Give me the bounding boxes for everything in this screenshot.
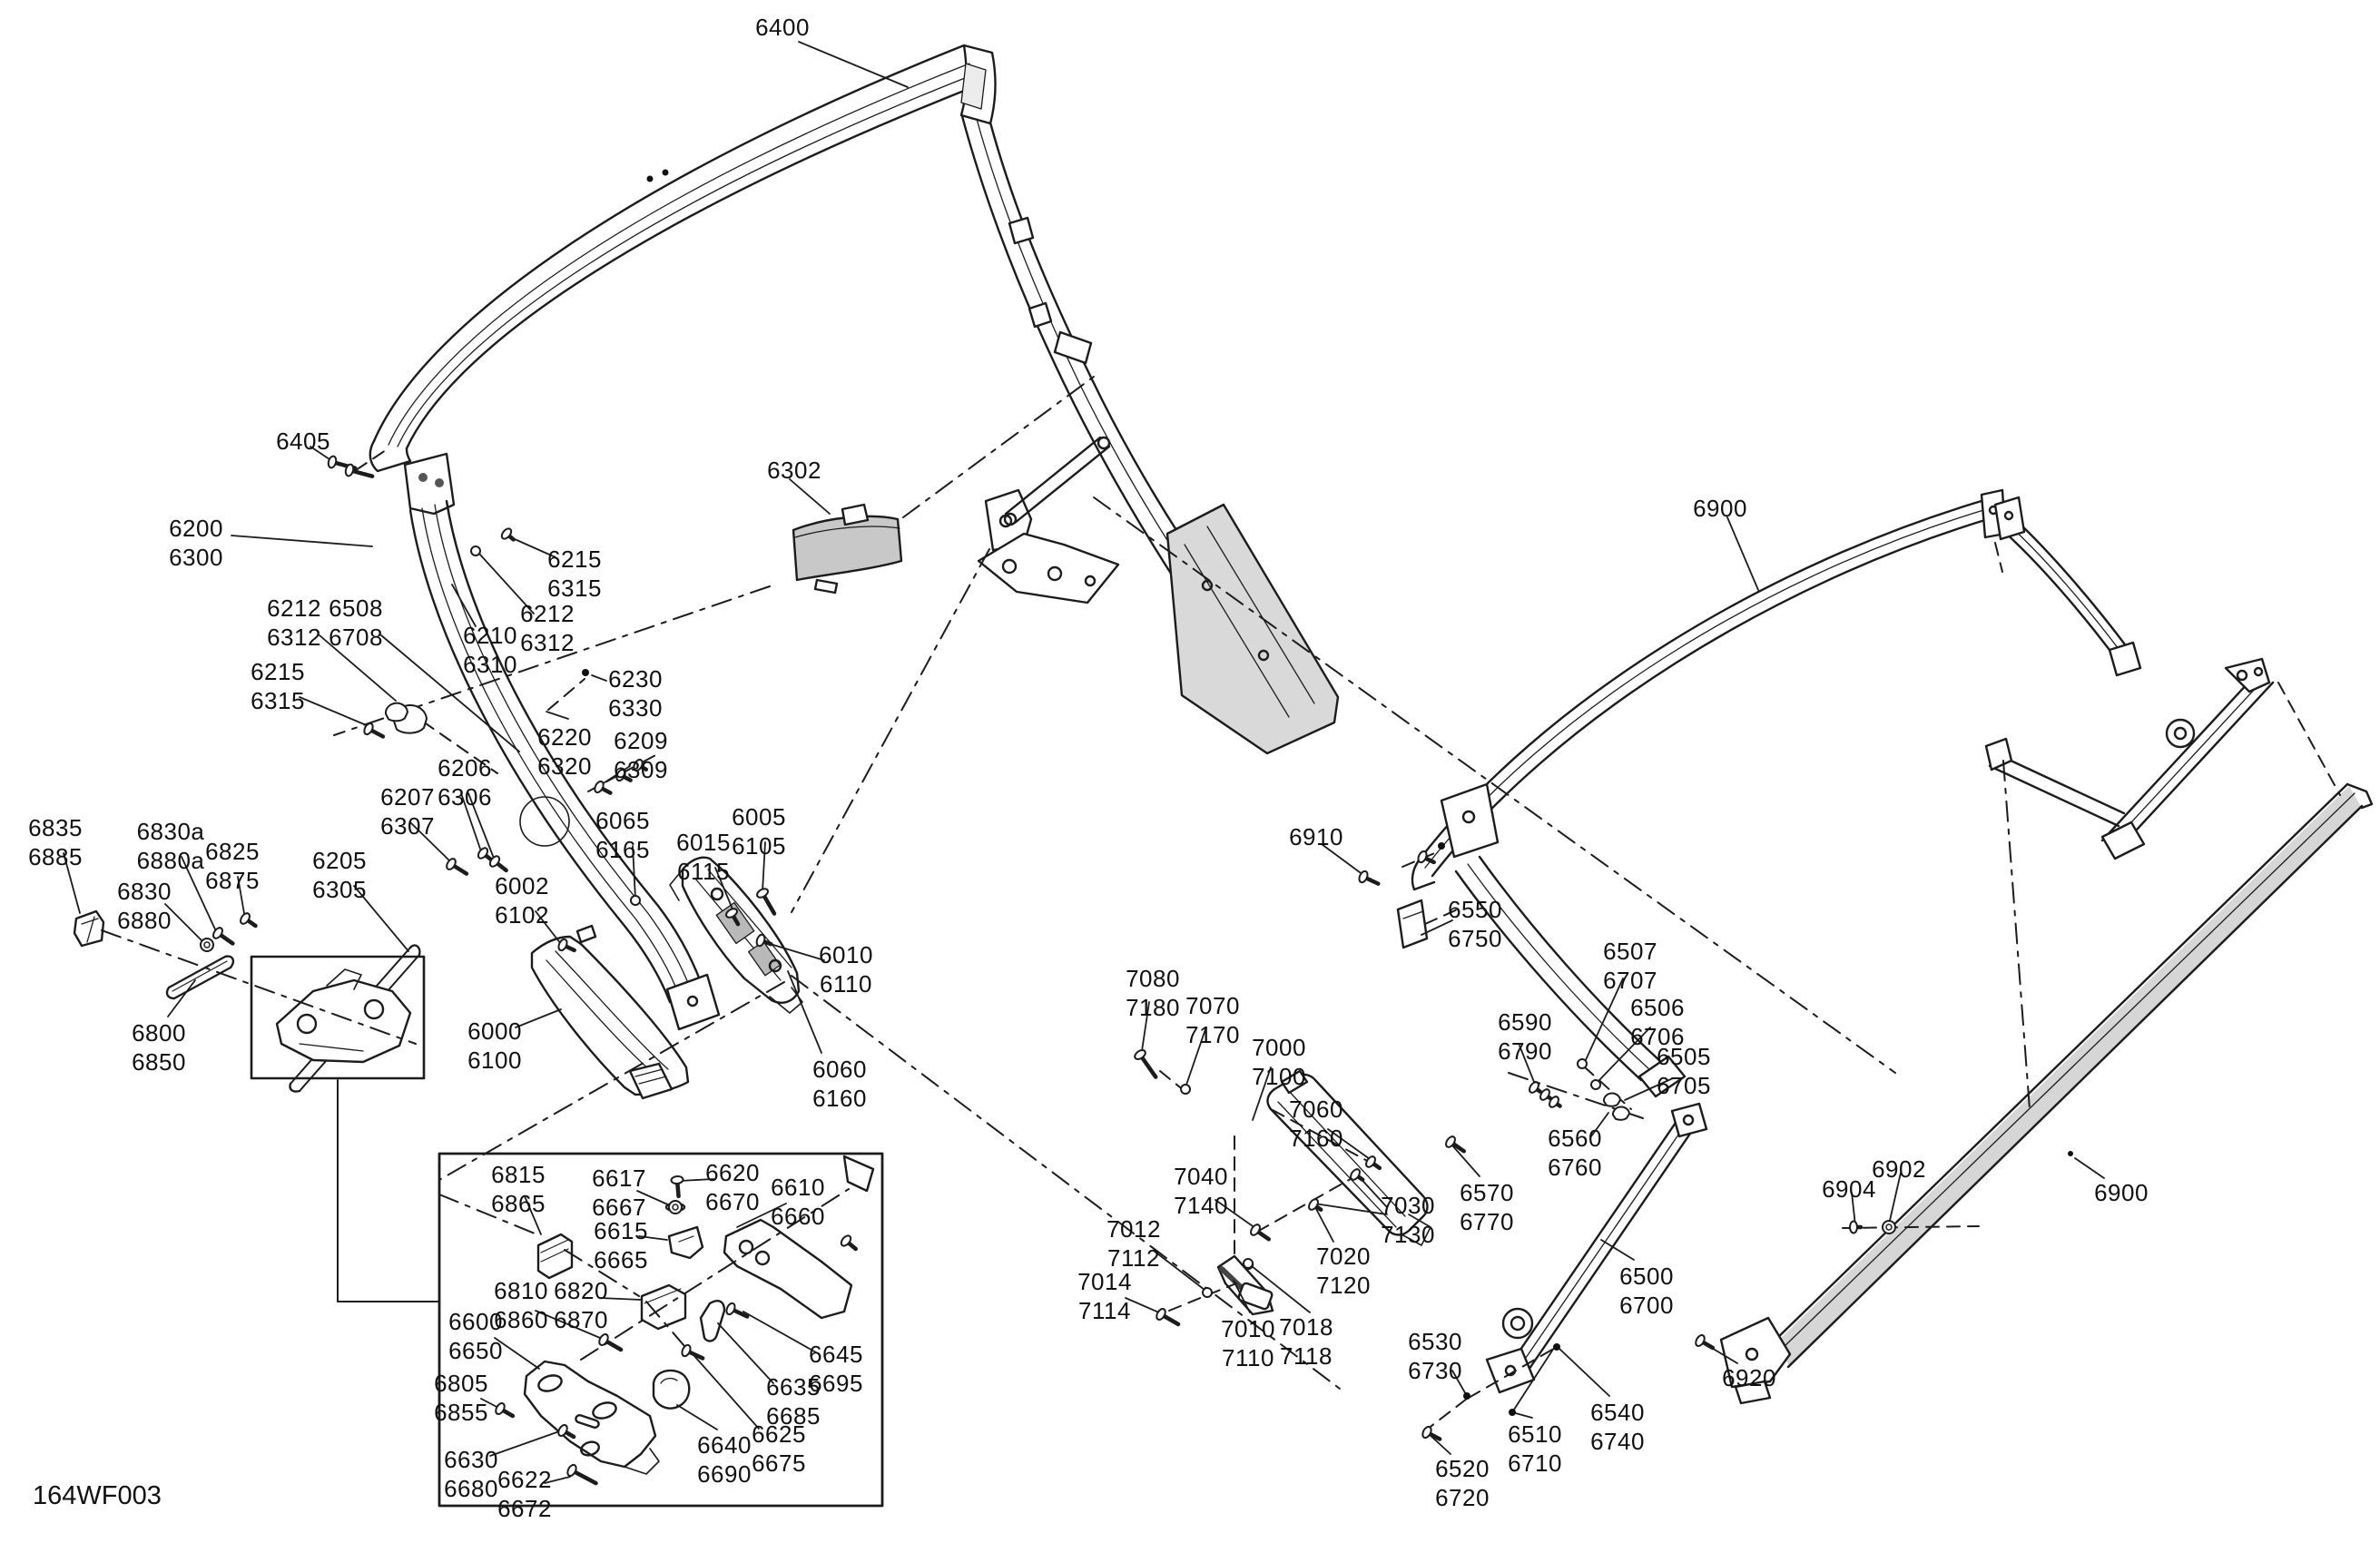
v-brace: [1986, 659, 2273, 859]
callout-6302: 6302: [767, 456, 821, 485]
pin-icon: [1438, 842, 1445, 850]
callout-line: 6307: [380, 811, 435, 840]
callout-line: 6100: [467, 1046, 522, 1075]
callout-6205-6305: 62056305: [312, 846, 367, 904]
dome-nut-icon: [1604, 1093, 1620, 1106]
callout-line: 7000: [1252, 1033, 1306, 1062]
callout-6060-6160: 60606160: [812, 1055, 867, 1113]
callout-line: 6310: [463, 650, 517, 679]
callout-line: 6645: [809, 1340, 863, 1369]
callout-line: 6810: [494, 1276, 548, 1305]
callout-6215-6315-b: 62156315: [251, 657, 305, 715]
callout-line: 6212: [267, 594, 321, 623]
screw-icon: [725, 1302, 737, 1315]
callout-7014-7114: 70147114: [1077, 1267, 1132, 1325]
callout-6805-6855: 68056855: [434, 1369, 488, 1427]
nut-icon: [631, 896, 640, 905]
callout-6002-6102: 60026102: [495, 871, 549, 929]
axis-dash-line: [548, 679, 585, 710]
dome-nut-icon: [1613, 1107, 1629, 1120]
callout-line: 6885: [28, 842, 83, 871]
rear-pillar: [962, 116, 1338, 753]
callout-7018-7118: 70187118: [1279, 1312, 1333, 1371]
callout-line: 6220: [537, 722, 592, 752]
callout-6620-6670: 66206670: [705, 1158, 760, 1216]
axis-dash-line: [2003, 761, 2030, 1109]
callout-line: 6002: [495, 871, 549, 900]
dome-nut-icon: [386, 703, 408, 722]
callout-line: 7140: [1174, 1191, 1228, 1220]
callout-line: 6110: [819, 969, 873, 998]
callout-line: 6302: [767, 456, 821, 485]
callout-line: 7014: [1077, 1267, 1132, 1296]
callout-7020-7120: 70207120: [1316, 1242, 1371, 1300]
callout-6830a-6880a: 6830a6880a: [137, 817, 205, 875]
callout-line: 7018: [1279, 1312, 1333, 1342]
callout-line: 6015: [676, 828, 731, 857]
callout-7000-7100: 70007100: [1252, 1033, 1306, 1091]
callout-line: 6622: [497, 1465, 552, 1494]
callout-line: 7170: [1185, 1020, 1240, 1049]
callout-line: 6615: [594, 1216, 648, 1245]
callout-6507-6707: 65076707: [1603, 937, 1657, 995]
callout-line: 6805: [434, 1369, 488, 1398]
callout-6800-6850: 68006850: [132, 1018, 186, 1076]
callout-line: 6855: [434, 1398, 488, 1427]
callout-line: 6760: [1548, 1153, 1602, 1182]
callout-line: 6900: [2094, 1178, 2149, 1207]
callout-line: 6720: [1435, 1483, 1490, 1512]
callout-line: 7110: [1221, 1343, 1275, 1372]
callout-line: 6730: [1408, 1356, 1462, 1385]
callout-line: 6675: [752, 1449, 806, 1478]
callout-line: 6600: [448, 1307, 503, 1336]
axis-dash-line: [1995, 543, 2002, 572]
callout-line: 7100: [1252, 1062, 1306, 1091]
callout-line: 6830a: [137, 817, 205, 846]
leader-line: [799, 42, 908, 87]
leader-line: [546, 712, 568, 719]
callout-line: 6312: [267, 623, 321, 652]
callout-line: 6105: [732, 831, 786, 860]
nut-icon: [1181, 1085, 1190, 1094]
callout-line: 6825: [205, 837, 260, 866]
callout-line: 7180: [1126, 993, 1180, 1022]
axis-dash-line: [792, 549, 989, 912]
callout-line: 6617: [592, 1164, 646, 1193]
callout-line: 6680: [444, 1474, 498, 1503]
callout-6212-6312-a: 62126312: [267, 594, 321, 652]
callout-line: 7080: [1126, 964, 1180, 993]
callout-line: 6900: [1693, 494, 1747, 523]
latch-bracket-box: [251, 957, 439, 1302]
leader-line: [718, 1323, 773, 1383]
callout-6615-6665: 66156665: [594, 1216, 648, 1274]
leader-line: [2075, 1158, 2104, 1178]
screw-icon: [494, 1401, 506, 1415]
callout-line: 6770: [1460, 1207, 1514, 1236]
callout-line: 6790: [1498, 1037, 1552, 1066]
callout-6900-top: 6900: [1693, 494, 1747, 523]
callout-line: 6540: [1590, 1398, 1645, 1427]
screw-icon: [755, 887, 769, 899]
leader-line: [1452, 1145, 1480, 1176]
callout-line: 6850: [132, 1047, 186, 1076]
leader-line: [300, 697, 369, 726]
callout-6207-6307: 62076307: [380, 782, 435, 840]
callout-line: 6590: [1498, 1007, 1552, 1037]
callout-line: 7012: [1106, 1214, 1161, 1243]
callout-line: 7070: [1185, 991, 1240, 1020]
callout-line: 6000: [467, 1017, 522, 1046]
callout-line: 6560: [1548, 1124, 1602, 1153]
callout-6005-6105: 60056105: [732, 802, 786, 860]
callout-6625-6675: 66256675: [752, 1420, 806, 1478]
callout-line: 6212: [520, 599, 575, 628]
screw-icon: [671, 1175, 684, 1184]
pin-icon: [1553, 1343, 1560, 1351]
nut-icon: [1578, 1059, 1587, 1068]
leader-line: [592, 675, 606, 681]
callout-line: 6305: [312, 875, 367, 904]
callout-line: 6815: [491, 1160, 546, 1189]
callout-line: 6215: [251, 657, 305, 686]
screw-icon: [327, 456, 337, 469]
figure-code: 164WF003: [33, 1481, 162, 1511]
pin-icon: [1509, 1409, 1516, 1416]
callout-6622-6672: 66226672: [497, 1465, 552, 1523]
callout-line: 6330: [608, 693, 663, 722]
callout-line: 6910: [1289, 822, 1343, 851]
callout-line: 6210: [463, 621, 517, 650]
callout-line: 7130: [1381, 1220, 1435, 1249]
callout-6065-6165: 60656165: [595, 806, 650, 864]
callout-line: 6630: [444, 1445, 498, 1474]
callout-6015-6115: 60156115: [676, 828, 731, 886]
callout-line: 6670: [705, 1187, 760, 1216]
callout-line: 6800: [132, 1018, 186, 1047]
callout-7010-7110: 70107110: [1221, 1314, 1275, 1372]
axis-dash-line: [1160, 1071, 1180, 1087]
callout-7030-7130: 70307130: [1381, 1191, 1435, 1249]
callout-6510-6710: 65106710: [1508, 1420, 1562, 1478]
callout-line: 6870: [554, 1305, 608, 1334]
callout-6900-bottom: 6900: [2094, 1178, 2149, 1207]
callout-line: 7120: [1316, 1271, 1371, 1300]
callout-6820-6870: 68206870: [554, 1276, 608, 1334]
axis-dash-line: [2278, 683, 2340, 795]
callout-6530-6730: 65306730: [1408, 1327, 1462, 1385]
callout-line: 6065: [595, 806, 650, 835]
washer-icon: [201, 939, 213, 951]
callout-line: 6207: [380, 782, 435, 811]
callout-6200-6300: 62006300: [169, 514, 223, 572]
callout-line: 6707: [1603, 966, 1657, 995]
callout-line: 6312: [520, 628, 575, 657]
callout-6904: 6904: [1822, 1174, 1876, 1204]
callout-line: 6620: [705, 1158, 760, 1187]
leader-line: [1154, 1251, 1205, 1290]
callout-6212-6312-b: 62126312: [520, 599, 575, 657]
callout-line: 7060: [1289, 1095, 1343, 1124]
bottom-rail: [1721, 784, 2372, 1403]
callout-line: 6205: [312, 846, 367, 875]
callout-line: 6300: [169, 543, 223, 572]
callout-line: 6530: [1408, 1327, 1462, 1356]
screw-icon: [1417, 850, 1429, 863]
callout-6590-6790: 65906790: [1498, 1007, 1552, 1066]
callout-line: 6750: [1448, 924, 1502, 953]
callout-6600-6650: 66006650: [448, 1307, 503, 1365]
callout-line: 6200: [169, 514, 223, 543]
axis-dash-line: [1843, 1226, 1979, 1228]
screw-icon: [681, 1343, 693, 1357]
callout-line: 7160: [1289, 1124, 1343, 1153]
screw-icon: [597, 1332, 609, 1346]
callout-line: 6010: [819, 940, 873, 969]
leader-line: [231, 536, 372, 546]
callout-6617-6667: 66176667: [592, 1164, 646, 1222]
screw-icon: [593, 780, 605, 793]
callout-6400: 6400: [755, 13, 810, 42]
callout-7080-7180: 70807180: [1126, 964, 1180, 1022]
callout-line: 6160: [812, 1084, 867, 1113]
callout-line: 7030: [1381, 1191, 1435, 1220]
callout-line: 6665: [594, 1245, 648, 1274]
callout-line: 6660: [771, 1202, 825, 1231]
callout-line: 6700: [1619, 1291, 1674, 1320]
callout-line: 6320: [537, 752, 592, 781]
callout-line: 6610: [771, 1173, 825, 1202]
callout-line: 6865: [491, 1189, 546, 1218]
callout-6206-6306: 62066306: [438, 753, 492, 811]
diagram-canvas: 6400640562006300621563156212631262126312…: [0, 0, 2380, 1543]
callout-6505-6705: 65056705: [1657, 1042, 1711, 1100]
callout-6508-6708: 65086708: [329, 594, 383, 652]
rear-window-frame: [1398, 490, 2005, 1096]
callout-6210-6310: 62106310: [463, 621, 517, 679]
callout-line: 6902: [1872, 1155, 1926, 1184]
callout-7060-7160: 70607160: [1289, 1095, 1343, 1153]
callout-6910: 6910: [1289, 822, 1343, 851]
callout-6550-6750: 65506750: [1448, 895, 1502, 953]
nut-icon: [471, 546, 480, 555]
callout-line: 6880: [117, 906, 172, 935]
callout-6640-6690: 66406690: [697, 1430, 752, 1489]
callout-6230-6330: 62306330: [608, 664, 663, 722]
callout-line: 6508: [329, 594, 383, 623]
callout-6220-6320: 62206320: [537, 722, 592, 781]
callout-line: 6708: [329, 623, 383, 652]
callout-line: 6570: [1460, 1178, 1514, 1207]
callout-6209-6309: 62096309: [614, 726, 668, 784]
callout-line: 6510: [1508, 1420, 1562, 1449]
callout-line: 6102: [495, 900, 549, 929]
callout-line: 7010: [1221, 1314, 1275, 1343]
leader-line: [743, 1312, 816, 1352]
leader-line: [1315, 1207, 1333, 1242]
callout-line: 6505: [1657, 1042, 1711, 1071]
callout-line: 6209: [614, 726, 668, 755]
callout-line: 6507: [1603, 937, 1657, 966]
callout-6570-6770: 65706770: [1460, 1178, 1514, 1236]
callout-line: 6875: [205, 866, 260, 895]
callout-line: 6920: [1722, 1363, 1776, 1392]
callout-line: 7118: [1279, 1342, 1333, 1371]
exploded-view-drawing: [0, 0, 2380, 1543]
nut-icon: [1591, 1080, 1600, 1089]
callout-line: 6880a: [137, 846, 205, 875]
leader-line: [694, 1356, 759, 1429]
corner-strip: [1995, 497, 2140, 675]
callout-6540-6740: 65406740: [1590, 1398, 1645, 1456]
callout-line: 7040: [1174, 1162, 1228, 1191]
callout-6630-6680: 66306680: [444, 1445, 498, 1503]
callout-line: 6650: [448, 1336, 503, 1365]
callout-line: 6315: [251, 686, 305, 715]
callout-line: 6520: [1435, 1454, 1490, 1483]
callout-6920: 6920: [1722, 1363, 1776, 1392]
callout-line: 6904: [1822, 1174, 1876, 1204]
callout-7070-7170: 70707170: [1185, 991, 1240, 1049]
callout-line: 6705: [1657, 1071, 1711, 1100]
callout-6902: 6902: [1872, 1155, 1926, 1184]
callout-line: 6405: [276, 427, 330, 456]
callout-line: 6740: [1590, 1427, 1645, 1456]
callout-line: 6625: [752, 1420, 806, 1449]
callout-line: 6215: [547, 545, 602, 574]
callout-line: 6005: [732, 802, 786, 831]
callout-6520-6720: 65206720: [1435, 1454, 1490, 1512]
nut-icon: [1203, 1288, 1212, 1297]
callout-6405: 6405: [276, 427, 330, 456]
axis-dash-line: [356, 448, 388, 470]
callout-line: 6400: [755, 13, 810, 42]
callout-6830-6880: 68306880: [117, 877, 172, 935]
callout-line: 6506: [1630, 993, 1685, 1022]
callout-6610-6660: 66106660: [771, 1173, 825, 1231]
callout-6835-6885: 68356885: [28, 813, 83, 871]
callout-line: 6115: [676, 857, 731, 886]
callout-line: 6309: [614, 755, 668, 784]
visor: [793, 505, 901, 593]
callout-line: 6060: [812, 1055, 867, 1084]
pin-icon: [1463, 1392, 1470, 1400]
leader-line: [1727, 517, 1758, 590]
callout-line: 6835: [28, 813, 83, 842]
leader-line: [1559, 1349, 1609, 1396]
washer-icon: [1883, 1221, 1895, 1233]
callout-line: 6500: [1619, 1262, 1674, 1291]
callout-line: 6550: [1448, 895, 1502, 924]
callout-6010-6110: 60106110: [819, 940, 873, 998]
callout-line: 7114: [1077, 1296, 1132, 1325]
pin-icon: [582, 669, 589, 676]
callout-6560-6760: 65606760: [1548, 1124, 1602, 1182]
screw-icon: [1850, 1222, 1857, 1233]
callout-6825-6875: 68256875: [205, 837, 260, 895]
callout-line: 6230: [608, 664, 663, 693]
roof-bow: [370, 45, 996, 471]
screw-icon: [565, 1463, 577, 1477]
callout-line: 6635: [766, 1372, 821, 1401]
leader-line: [677, 1405, 717, 1430]
callout-line: 6640: [697, 1430, 752, 1459]
callout-6500-6700: 65006700: [1619, 1262, 1674, 1320]
callout-line: 6710: [1508, 1449, 1562, 1478]
callout-line: 6672: [497, 1494, 552, 1523]
screw-icon: [1155, 1307, 1166, 1321]
callout-line: 6690: [697, 1459, 752, 1489]
callout-6815-6865: 68156865: [491, 1160, 546, 1218]
leader-line: [516, 1009, 561, 1027]
callout-line: 6820: [554, 1276, 608, 1305]
callout-6215-6315-a: 62156315: [547, 545, 602, 603]
callout-line: 6306: [438, 782, 492, 811]
leader-line: [788, 971, 821, 1053]
screw-icon: [1694, 1333, 1706, 1347]
callout-line: 6165: [595, 835, 650, 864]
callout-line: 6206: [438, 753, 492, 782]
nut-icon: [1244, 1259, 1253, 1268]
leader-line: [490, 1430, 562, 1456]
callout-6000-6100: 60006100: [467, 1017, 522, 1075]
callout-line: 7020: [1316, 1242, 1371, 1271]
callout-7012-7112: 70127112: [1106, 1214, 1161, 1273]
callout-line: 6830: [117, 877, 172, 906]
callout-7040-7140: 70407140: [1174, 1162, 1228, 1220]
washer-icon: [669, 1201, 682, 1214]
